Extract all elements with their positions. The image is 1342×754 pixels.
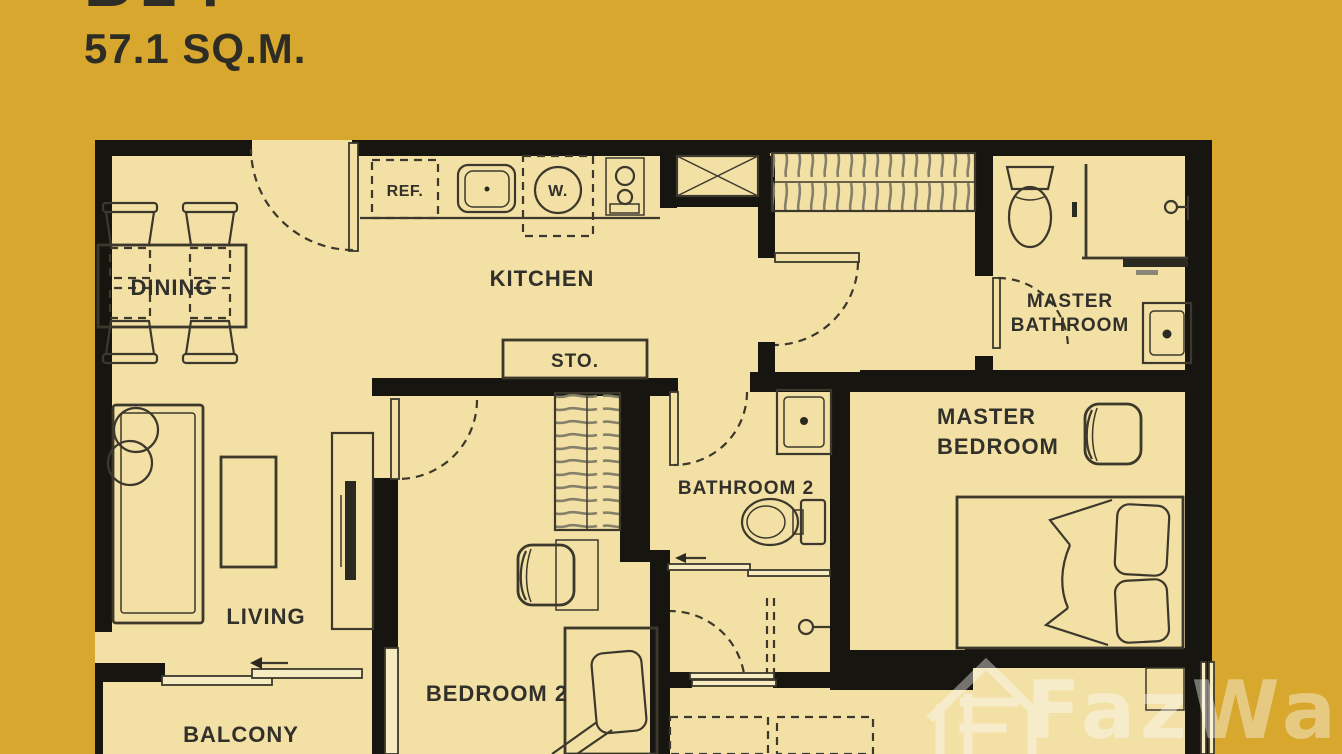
- bedroom2-wardrobe-icon: [555, 393, 620, 530]
- service-sliding-door: [690, 673, 776, 686]
- kitchen-label: KITCHEN: [490, 266, 595, 291]
- corridor-wardrobe-icon: [772, 153, 975, 211]
- svg-text:BEDROOM: BEDROOM: [937, 434, 1059, 459]
- brand-wordmark: FazWaz: [1026, 664, 1342, 754]
- floor-plan: REF. W. STO.: [0, 0, 1342, 754]
- svg-text:BATHROOM: BATHROOM: [1011, 315, 1129, 336]
- bathroom2-label: BATHROOM 2: [678, 478, 814, 499]
- unit-type-title: B14: [84, 0, 229, 16]
- refrigerator-label: REF.: [387, 183, 424, 200]
- svg-text:MASTER: MASTER: [937, 404, 1036, 429]
- washer-label: W.: [548, 183, 568, 200]
- bedroom2-window: [385, 648, 398, 754]
- dining-label: DINING: [131, 275, 214, 300]
- living-label: LIVING: [226, 604, 305, 629]
- svg-text:MASTER: MASTER: [1027, 291, 1113, 312]
- unit-area-label: 57.1 SQ.M.: [84, 26, 306, 72]
- bedroom2-label: BEDROOM 2: [426, 681, 568, 706]
- balcony-label: BALCONY: [183, 722, 299, 747]
- storage-label: STO.: [551, 351, 599, 372]
